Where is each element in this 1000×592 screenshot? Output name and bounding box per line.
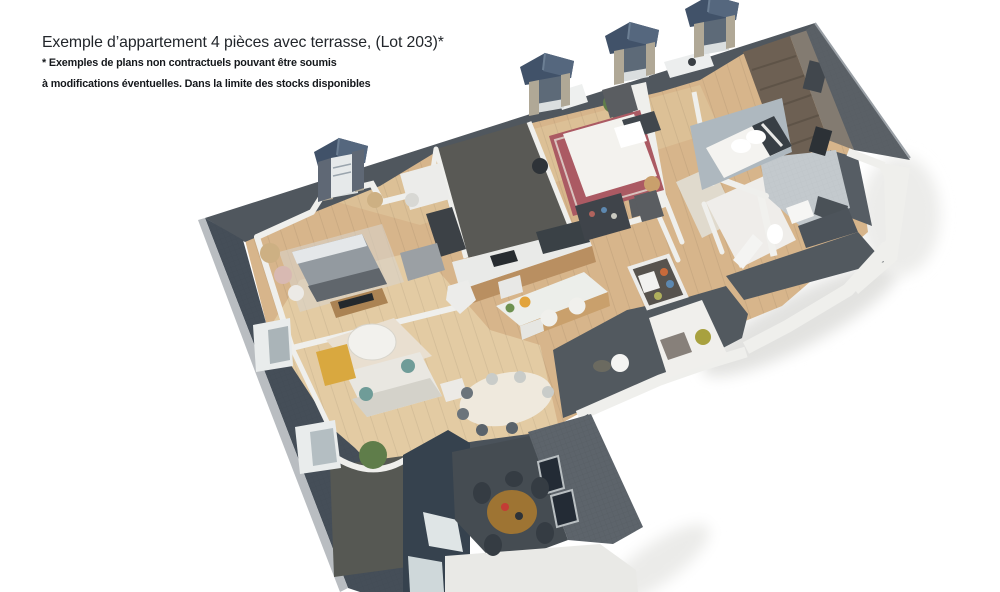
svg-text:Exemple d’appartement 4 pièces: Exemple d’appartement 4 pièces avec terr…	[42, 34, 444, 51]
svg-text:* Exemples de plans non contra: * Exemples de plans non contractuels pou…	[42, 57, 337, 69]
svg-text:à modifications éventuelles. D: à modifications éventuelles. Dans la lim…	[42, 78, 371, 90]
